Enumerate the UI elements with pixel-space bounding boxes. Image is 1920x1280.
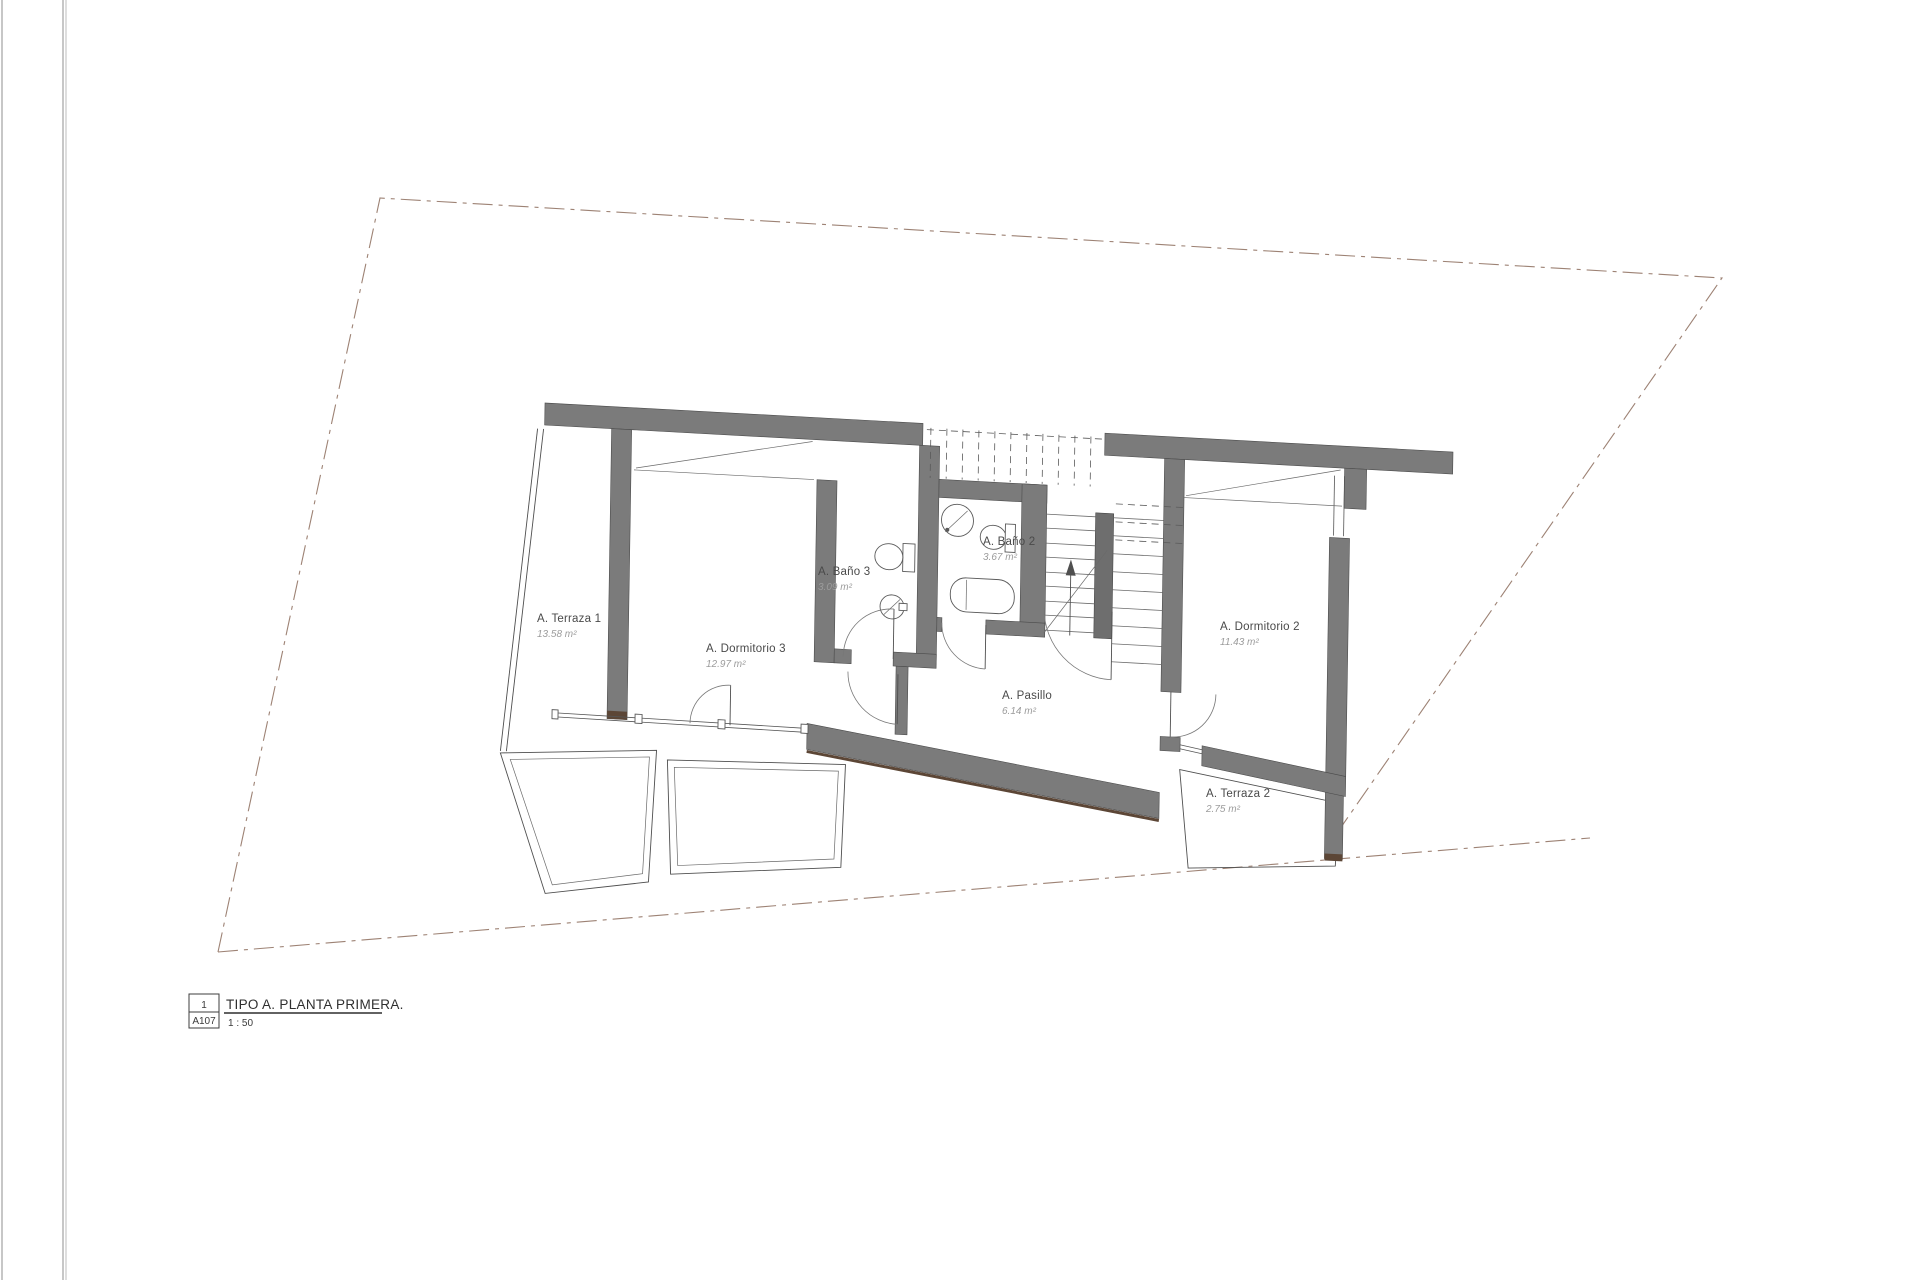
- plot-boundary: [218, 198, 1722, 952]
- svg-text:A. Terraza 1: A. Terraza 1: [537, 613, 601, 625]
- room-label-terraza2: A. Terraza 2 2.75 m²: [1205, 788, 1270, 815]
- door-dorm2: [1170, 692, 1216, 739]
- svg-text:A. Terraza 2: A. Terraza 2: [1206, 788, 1270, 800]
- floor-plan-svg: A. Terraza 1 13.58 m² A. Dormitorio 3 12…: [0, 0, 1920, 1280]
- exterior-walls: [539, 403, 1453, 836]
- room-label-terraza1: A. Terraza 1 13.58 m²: [537, 613, 601, 640]
- sheet-number: A107: [192, 1016, 216, 1027]
- lower-terrace-middle: [666, 755, 846, 884]
- stair-up-arrow: [1065, 559, 1076, 636]
- svg-text:13.58 m²: 13.58 m²: [537, 629, 577, 640]
- lower-terrace-left: [498, 742, 656, 899]
- door-dorm3-terrace: [690, 683, 731, 725]
- svg-text:12.97 m²: 12.97 m²: [706, 659, 746, 670]
- bathtub-icon: [950, 577, 1015, 614]
- svg-text:A. Dormitorio 3: A. Dormitorio 3: [706, 643, 786, 655]
- room-label-pasillo: A. Pasillo 6.14 m²: [1002, 690, 1052, 717]
- drawing-scale: 1 : 50: [228, 1018, 253, 1029]
- room-label-dormitorio3: A. Dormitorio 3 12.97 m²: [706, 643, 786, 670]
- svg-text:3.09 m²: 3.09 m²: [818, 582, 853, 593]
- svg-text:A. Baño 2: A. Baño 2: [983, 536, 1035, 548]
- room-label-dormitorio2: A. Dormitorio 2 11.43 m²: [1220, 621, 1300, 648]
- title-block: 1 A107 TIPO A. PLANTA PRIMERA. 1 : 50: [189, 994, 404, 1029]
- svg-text:3.67 m²: 3.67 m²: [983, 552, 1018, 563]
- door-dorm3: [847, 672, 898, 725]
- closet-dorm2: [1184, 462, 1343, 507]
- closet-dorm3: [634, 432, 815, 480]
- sheet-frame: [2, 0, 66, 1280]
- door-bath2: [941, 623, 986, 669]
- bath3-fixtures: [874, 542, 915, 620]
- svg-text:2.75 m²: 2.75 m²: [1205, 804, 1241, 815]
- glazed-wall-dorm3: [552, 710, 808, 734]
- doors: [690, 589, 1217, 751]
- staircase: [923, 428, 1185, 666]
- terrace1-balustrade: [500, 427, 543, 753]
- detail-number: 1: [201, 1000, 207, 1011]
- svg-text:A. Pasillo: A. Pasillo: [1002, 690, 1052, 702]
- toilet-icon: [875, 543, 903, 571]
- svg-text:6.14 m²: 6.14 m²: [1002, 706, 1037, 717]
- toilet-tank: [903, 543, 915, 572]
- svg-text:11.43 m²: 11.43 m²: [1220, 637, 1259, 648]
- drawing-title: TIPO A. PLANTA PRIMERA.: [226, 997, 404, 1012]
- svg-text:A. Dormitorio 2: A. Dormitorio 2: [1220, 621, 1300, 633]
- drawing-sheet: A. Terraza 1 13.58 m² A. Dormitorio 3 12…: [0, 0, 1920, 1280]
- svg-text:A. Baño 3: A. Baño 3: [818, 566, 870, 578]
